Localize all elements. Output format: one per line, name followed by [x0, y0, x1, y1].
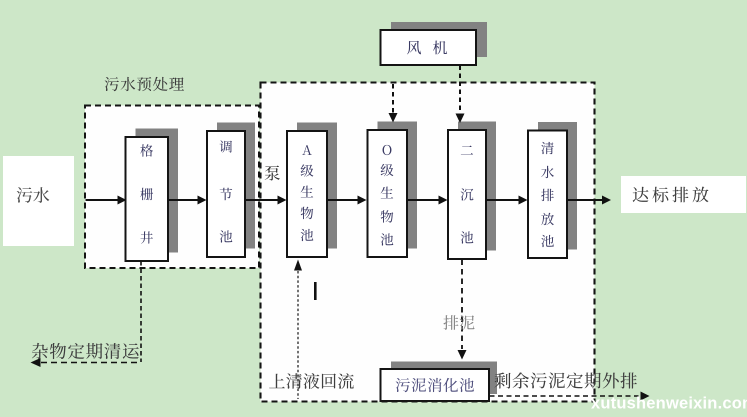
svg-text:xutushenweixin.com: xutushenweixin.com — [591, 395, 747, 413]
